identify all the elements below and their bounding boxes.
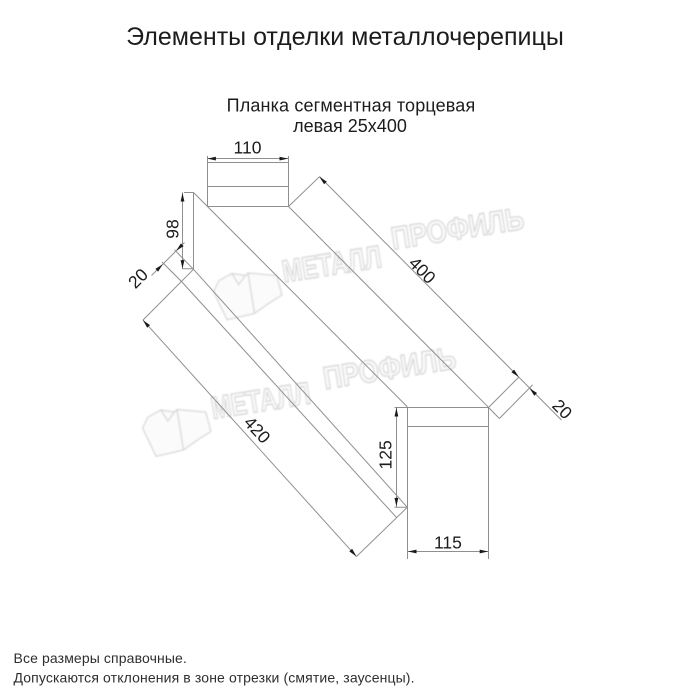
- svg-text:115: 115: [434, 533, 462, 553]
- svg-text:Элементы отделки металлочерепи: Элементы отделки металлочерепицы: [126, 23, 564, 51]
- svg-text:Допускаются отклонения в зоне: Допускаются отклонения в зоне отрезки (с…: [14, 669, 415, 685]
- svg-text:Планка сегментная торцевая: Планка сегментная торцевая: [227, 95, 476, 115]
- svg-text:Все размеры справочные.: Все размеры справочные.: [14, 650, 187, 666]
- svg-text:левая 25х400: левая 25х400: [293, 116, 407, 136]
- svg-text:110: 110: [234, 138, 262, 158]
- svg-text:125: 125: [376, 440, 396, 469]
- svg-text:98: 98: [163, 219, 183, 238]
